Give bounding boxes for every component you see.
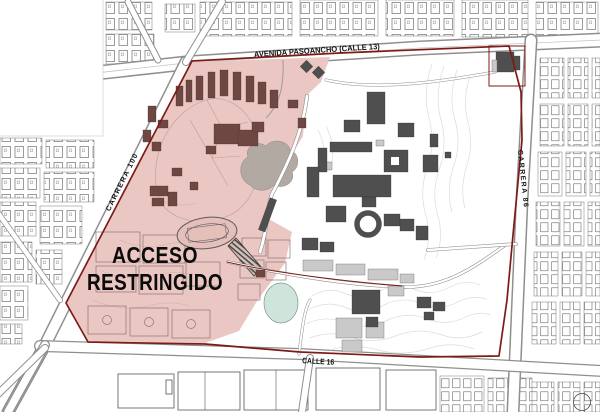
- campus-map: AVENIDA PASOANCHO (CALLE 13) CARRERA 100…: [0, 0, 600, 412]
- street-label-calle-16: CALLE 16: [302, 356, 335, 367]
- pond: [264, 283, 298, 323]
- map-root: AVENIDA PASOANCHO (CALLE 13) CARRERA 100…: [0, 0, 600, 412]
- restricted-label-line1: ACCESO: [112, 242, 198, 268]
- legend-blank-area: [0, 0, 103, 136]
- restricted-label-line2: RESTRINGIDO: [87, 269, 223, 295]
- grove: [241, 141, 298, 190]
